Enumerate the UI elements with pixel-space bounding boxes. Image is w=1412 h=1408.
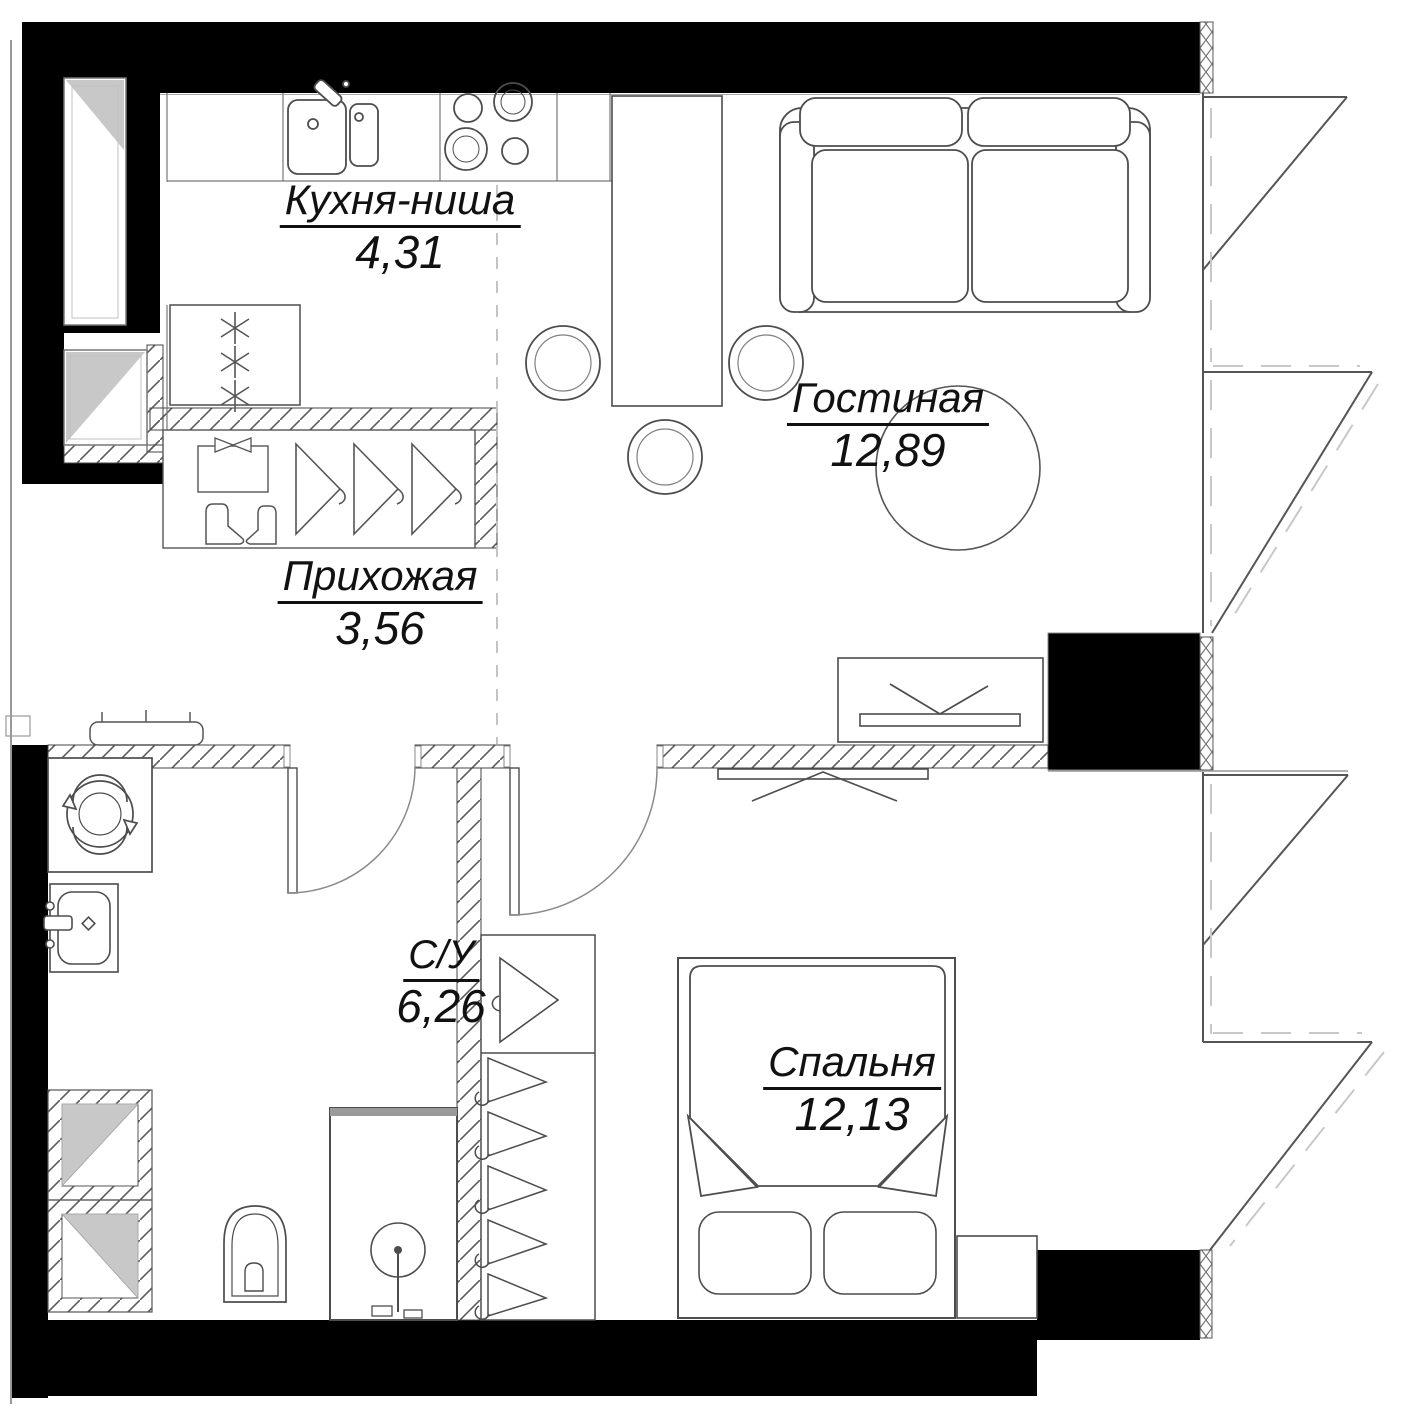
nightstand bbox=[957, 1236, 1037, 1318]
room-area: 4,31 bbox=[355, 226, 445, 278]
room-label-bedroom: Спальня 12,13 bbox=[763, 1040, 941, 1138]
room-label-living: Гостиная 12,89 bbox=[787, 376, 989, 474]
room-area: 12,13 bbox=[794, 1088, 909, 1140]
room-label-hallway: Прихожая 3,56 bbox=[278, 554, 483, 652]
shower bbox=[330, 1108, 457, 1320]
floor-plan-drawing bbox=[0, 0, 1412, 1408]
bath-sink bbox=[44, 884, 118, 972]
floor-plan: Кухня-ниша 4,31 Гостиная 12,89 Прихожая … bbox=[0, 0, 1412, 1408]
bay-windows bbox=[1203, 93, 1372, 1250]
room-area: 12,89 bbox=[830, 424, 945, 476]
dining-table bbox=[612, 96, 722, 406]
sliding-door bbox=[718, 769, 928, 801]
room-name: С/У bbox=[403, 934, 479, 982]
hall-wardrobe bbox=[163, 430, 475, 548]
hall-bench bbox=[90, 710, 203, 745]
fridge bbox=[170, 305, 300, 412]
bay-glazing-dashes bbox=[1211, 108, 1384, 1246]
room-name: Гостиная bbox=[787, 376, 989, 426]
room-name: Кухня-ниша bbox=[280, 178, 521, 228]
room-area: 3,56 bbox=[335, 602, 425, 654]
stove bbox=[445, 83, 532, 170]
duct-shaft-upper bbox=[48, 1090, 152, 1200]
toilet bbox=[224, 1206, 286, 1302]
room-label-bathroom: С/У 6,26 bbox=[396, 934, 486, 1030]
room-area: 6,26 bbox=[396, 980, 486, 1032]
room-name: Спальня bbox=[763, 1040, 941, 1090]
washing-machine bbox=[48, 758, 152, 872]
window-niche-lower bbox=[64, 350, 147, 445]
tv-console bbox=[838, 658, 1043, 742]
sofa bbox=[780, 98, 1150, 312]
bedroom-door bbox=[504, 746, 663, 915]
window-niche-upper bbox=[64, 78, 126, 325]
room-label-kitchen: Кухня-ниша 4,31 bbox=[280, 178, 521, 276]
bathroom-door bbox=[284, 746, 421, 893]
duct-shaft-lower bbox=[48, 1200, 152, 1312]
bedroom-wardrobe bbox=[475, 935, 595, 1320]
room-name: Прихожая bbox=[278, 554, 483, 604]
